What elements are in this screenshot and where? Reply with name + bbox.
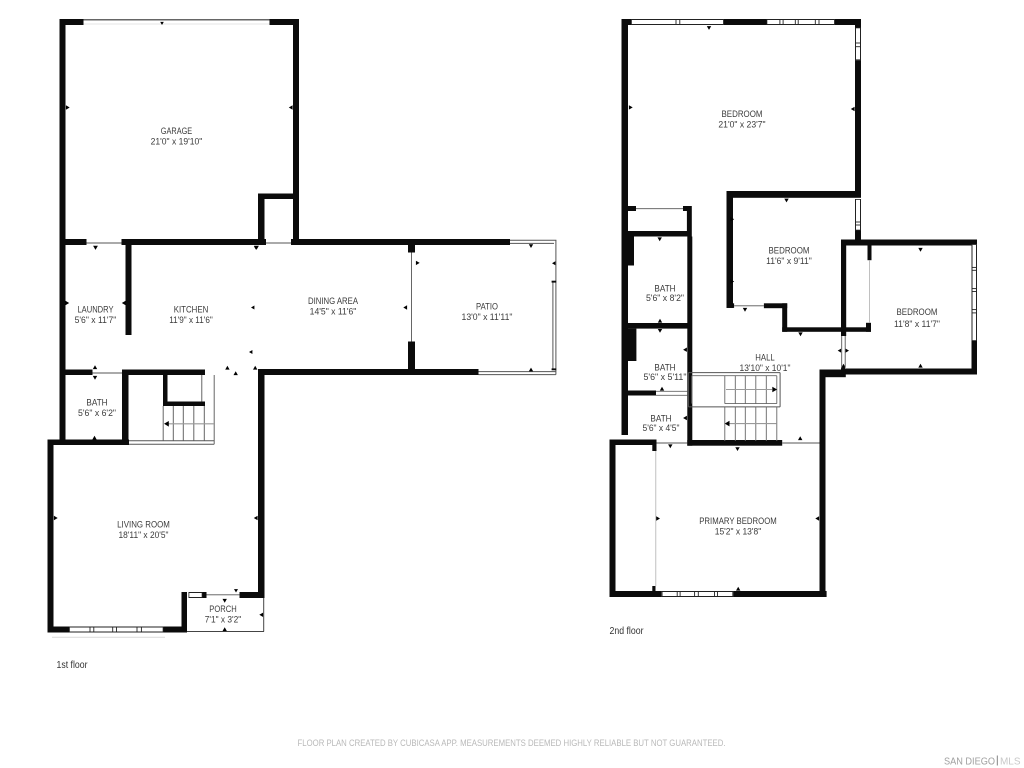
svg-text:14'5" x 11'6": 14'5" x 11'6" <box>310 307 357 318</box>
svg-text:11'9" x 11'6": 11'9" x 11'6" <box>169 315 213 326</box>
svg-text:5'6" x 5'11": 5'6" x 5'11" <box>644 372 687 383</box>
svg-text:PATIO: PATIO <box>476 302 498 313</box>
svg-text:11'6" x 9'11": 11'6" x 9'11" <box>766 256 812 267</box>
svg-text:15'2" x 13'8": 15'2" x 13'8" <box>715 527 762 538</box>
svg-text:5'6" x 8'2": 5'6" x 8'2" <box>646 293 684 304</box>
svg-text:MLS: MLS <box>1000 757 1021 768</box>
svg-text:PRIMARY BEDROOM: PRIMARY BEDROOM <box>699 516 777 527</box>
svg-text:1st floor: 1st floor <box>57 660 88 671</box>
svg-text:5'6" x 11'7": 5'6" x 11'7" <box>75 315 117 326</box>
svg-text:5'6" x 4'5": 5'6" x 4'5" <box>643 423 680 434</box>
svg-text:BEDROOM: BEDROOM <box>769 246 810 257</box>
svg-text:LIVING ROOM: LIVING ROOM <box>117 520 170 531</box>
svg-text:FLOOR PLAN CREATED BY CUBICASA: FLOOR PLAN CREATED BY CUBICASA APP. MEAS… <box>298 738 726 748</box>
svg-text:7'1" x 3'2": 7'1" x 3'2" <box>205 615 242 626</box>
svg-text:13'10" x 10'1": 13'10" x 10'1" <box>740 363 791 374</box>
svg-text:13'0" x 11'11": 13'0" x 11'11" <box>462 312 513 323</box>
svg-text:BEDROOM: BEDROOM <box>722 109 763 120</box>
svg-text:BATH: BATH <box>86 398 107 409</box>
svg-text:KITCHEN: KITCHEN <box>174 305 209 316</box>
svg-text:SAN DIEGO: SAN DIEGO <box>944 757 995 768</box>
svg-text:2nd floor: 2nd floor <box>610 626 644 637</box>
svg-text:BEDROOM: BEDROOM <box>897 307 938 318</box>
svg-text:GARAGE: GARAGE <box>161 126 192 137</box>
svg-text:21'0" x 23'7": 21'0" x 23'7" <box>718 120 765 131</box>
svg-text:HALL: HALL <box>755 353 775 364</box>
svg-text:DINING AREA: DINING AREA <box>308 296 359 307</box>
svg-text:11'8" x 11'7": 11'8" x 11'7" <box>894 319 940 330</box>
svg-text:PORCH: PORCH <box>209 604 237 615</box>
svg-text:21'0" x 19'10": 21'0" x 19'10" <box>151 137 203 148</box>
svg-text:LAUNDRY: LAUNDRY <box>77 305 114 316</box>
svg-text:5'6" x 6'2": 5'6" x 6'2" <box>78 408 116 419</box>
svg-text:18'11" x 20'5": 18'11" x 20'5" <box>119 530 169 541</box>
